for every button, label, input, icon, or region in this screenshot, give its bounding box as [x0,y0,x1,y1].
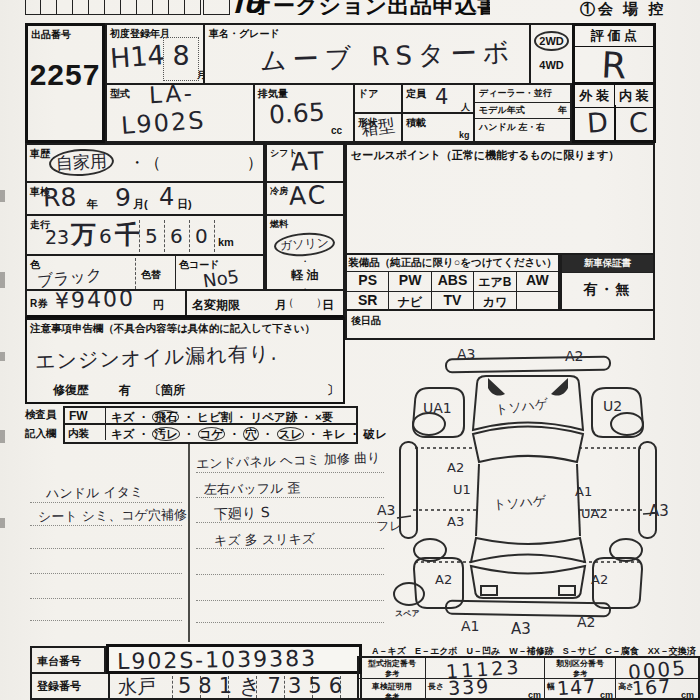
divider [105,425,106,440]
dmg-front-left: A3 [457,346,475,362]
scan-edge-mark [0,190,5,202]
note-line [30,598,182,599]
note-line [196,600,384,601]
equipment-box: 装備品（純正品に限り○をつけてください） PS PW ABS エアB AW SR… [345,255,560,311]
shape-cell: 形状 箱型 [355,114,403,143]
fw-item: キズ [111,411,135,423]
dmg-quarter-l: A2 [435,572,452,587]
history-paren-close: ） [247,153,263,174]
length-value: 339 [447,675,490,699]
spec-table: 型式指定番号 参考 11123 類別区分番号 参考 0005 車検証明用 参考 … [357,656,700,700]
mileage-row: 走行 23 万 6 千 5 6 0 km [25,216,265,256]
height-cell: 高さ 167 cm [616,679,698,700]
mileage-man-unit: 万 [71,218,96,251]
equipment-label: 装備品（純正品に限り○をつけてください） [347,255,558,272]
chassis-value-box: L902S-1039383 [106,644,362,674]
plate-prefix: 水戸 [118,673,157,700]
shaken-day-unit: 日) [177,197,192,212]
chassis-label-cell: 車台番号 [30,646,106,674]
capacity-unit: 人 [461,101,470,114]
divider [139,220,140,252]
int-item-circled: 穴 [243,427,259,441]
sep: ・ [138,411,150,423]
inspector-head1: 検査員 [25,408,57,422]
later-items-label: 後日品 [351,314,653,328]
corner-copy-note: ①会 場 控 [580,0,666,19]
divider [172,676,173,698]
sep: ・ [138,428,150,440]
int-item-circled: コゲ [198,427,226,441]
note-line [30,620,182,621]
caution-label: 注意事項申告欄（不具合内容等は具体的に記入して下さい） [30,322,343,336]
taillight-left [481,586,497,595]
int-item: 破レ [363,428,386,440]
sep: ・ [228,428,240,440]
caution-note: エンジンオイル漏れ有り. [35,340,278,375]
cowl-left [488,378,505,396]
form-title: オークション出品申込書 [250,0,490,15]
model-no-label: 型式指定番号 [359,658,425,669]
spare-tire [394,583,424,605]
doors-cell: ドア [355,85,403,114]
history-row: 車歴 自家用 ・（ ） [25,143,265,183]
divider [164,220,165,252]
dmg-side-r2: UA2 [581,506,608,521]
spare-label: スペア [395,608,420,619]
history-value: 自家用 [48,147,114,177]
fuel-label: 燃料 [270,218,343,231]
load-label: 積載 [406,116,473,130]
note-scratches: キズ 多 スリキズ [214,530,315,550]
int-item-circled: スレ [277,427,305,441]
strip-cell [73,0,89,15]
note-line [30,548,182,549]
interior-row-label: 内装 [68,427,89,441]
mileage-d3: 0 [195,224,208,248]
wheel-front-left [413,413,445,435]
scan-edge-mark [0,352,5,361]
mileage-sen-unit: 千 [115,218,140,251]
taillight-right [559,586,575,595]
cert-label-cell: 車検証明用 参考 [359,679,426,700]
note-line [30,573,182,574]
sales-point-label: セールスポイント（正常に機能するものに限ります） [351,148,653,163]
rear-hatch [471,566,585,598]
shape-value: 箱型 [360,114,397,142]
int-item: キズ [111,428,135,440]
drive-2wd: 2WD [534,31,568,51]
equip-pw: PW [389,272,431,291]
grade-box: 評 価 点 R [572,23,656,85]
cabin-left-edge [476,464,479,536]
warranty-value: 有・無 [562,281,653,299]
displacement-value: 0.65 [268,98,325,130]
interior-items: キズ ・ 汚レ ・ コゲ ・ 穴 ・ スレ ・ キレ ・ 破レ [111,427,387,442]
fuel-cell: 燃料 ガソリン ・ 軽 油 ・ （ ） [265,216,345,291]
cert-label: 車検証明用 [359,681,425,692]
grade-value: R [574,43,654,88]
equip-aw: AW [517,272,558,291]
width-cell: 幅 147 cm [545,679,616,700]
displacement-box: 排気量 0.65 cc [255,85,355,143]
strip-cell [137,0,153,15]
first-registration-month: 8 [164,40,198,71]
repair-location-close: 〕 [327,382,339,399]
dmg-rear3: A2 [577,614,595,630]
shaken-month-unit: 月( [133,197,148,212]
plate-row: 登録番号 水戸 581き7356 [30,674,362,700]
fuel-gasoline: ガソリン [274,231,337,258]
shaken-row: 車検 R8 年 9 月( 4 日) [25,183,265,216]
shaken-day: 4 [159,183,174,211]
strip-cell [41,0,57,15]
sep: ・ [262,428,274,440]
shift-cell: シフト AT [265,143,345,183]
int-item: キレ [322,428,346,440]
model-code-prefix: LA- [148,80,195,108]
lot-number-label: 出品番号 [31,28,102,42]
lot-number-value: 2257 [28,58,102,92]
model-year-label: モデル年式 [479,104,525,117]
cm-unit: cm [600,690,613,700]
equip-empty [517,292,558,311]
equip-abs: ABS [432,272,474,291]
drive-type-box: 2WD 4WD [531,23,572,85]
dmg-side-r1: A1 [575,484,592,499]
ac-cell: 冷房 AC [265,183,345,216]
fw-item: ×要 [315,411,333,423]
strip-cell [89,0,105,15]
scan-edge-mark [0,518,5,528]
car-outline-svg [393,342,663,642]
mileage-sen-digit: 6 [99,224,112,248]
int-item-circled: 汚レ [152,427,179,441]
strip-cell [25,0,41,15]
mileage-d2: 6 [170,224,183,248]
divider [105,408,106,423]
right-sill [639,442,656,538]
dmg-out-left-note: フレ [377,518,402,535]
sep: ・ [307,428,319,440]
notes-divider [188,444,190,642]
fuel-sep: ・ [267,256,343,267]
equip-navi: ナビ [389,292,431,311]
equip-kawa: カワ [474,292,516,311]
strip-cell [105,0,121,15]
car-damage-diagram: A3 A2 UA1 U2 トソハゲ トソハゲ A2 U1 A3 A3 フレ A1… [393,342,663,642]
rticket-value: ¥9400 [55,286,136,314]
ref-note: 参考 [359,692,425,700]
load-unit: kg [459,130,470,140]
color-code-value: No5 [202,266,241,292]
dmg-out-left: A3 [377,502,395,518]
color-change-label: 色替 [141,268,161,282]
model-no-label-cell: 型式指定番号 参考 [359,658,426,678]
handle-side-label: ハンドル 左・右 [475,119,570,134]
dmg-quarter-r: A2 [591,572,608,587]
warranty-label: 新車保証書 [562,255,653,273]
mileage-unit: km [218,236,234,248]
note-underbody: 下廻り S [214,504,270,524]
capacity-value: 4 [435,85,448,109]
fw-label: FW [69,409,88,423]
car-name-value: ムーブ RSターボ [259,35,515,79]
shift-value: AT [291,146,326,176]
later-items-box: 後日品 [345,311,655,340]
note-baffle: 左右バッフル 歪 [204,479,301,499]
dmg-rear2: A3 [511,620,531,638]
divider [214,220,215,252]
chassis-value: L902S-1039383 [117,645,359,674]
fuel-sep: ・ [267,284,343,295]
chassis-label: 車台番号 [37,654,104,669]
model-year-unit: 年 [558,104,567,117]
equip-sr: SR [347,292,389,311]
doors-label: ドア [358,87,401,101]
fuel-diesel: 軽 油 [267,267,343,284]
load-cell: 積載 kg [403,114,475,143]
sales-point-box: セールスポイント（正常に機能するものに限ります） [345,143,655,255]
divider [108,674,110,700]
fw-item: リペア跡 [250,411,297,423]
divider [185,291,187,315]
divider [189,220,190,252]
strip-cell [57,0,73,15]
exterior-label: 外 装 [575,85,615,107]
exterior-value: D [586,106,609,138]
car-name-box: 車名・グレード ムーブ RSターボ [205,23,531,85]
capacity-cell: 定員 4 人 [403,85,475,114]
fw-item-circled: 飛石 [152,410,179,424]
strip-cell [169,0,185,15]
code-box-strip [25,0,201,15]
strip-cell [121,0,137,15]
exterior-interior-box: 外 装 内 装 D C [572,85,656,143]
rticket-unit: 円 [153,298,164,313]
sep: ・ [349,428,361,440]
history-paren-open: ・（ [129,153,161,174]
dealer-handle-box: ディーラー・並行 モデル年式 年 ハンドル 左・右 [475,85,572,143]
rear-window [471,538,585,562]
model-code-value: L902S [120,106,206,140]
dmg-side-l3: A3 [447,514,464,529]
equip-airbag: エアB [474,272,516,291]
fuel-other: （ ） [267,295,343,310]
caution-box: 注意事項申告欄（不具合内容等は具体的に記入して下さい） エンジンオイル漏れ有り.… [25,318,345,404]
fw-item: ヒビ割 [197,411,232,423]
scan-edge-mark [0,272,5,288]
first-registration-box: 初度登録年月 H14 8 月 [105,23,205,85]
plate-value: 581き7356 [178,672,349,700]
dmg-rear1: A1 [461,618,479,634]
class-no-label: 類別区分番号 [545,658,615,669]
sep: ・ [183,411,195,423]
note-line [196,622,384,623]
fw-items: キズ ・ 飛石 ・ ヒビ割 ・ リペア跡 ・ ×要 [111,410,333,425]
cabin-right-edge [577,464,580,536]
month-subcell: 8 [163,37,199,81]
dmg-fender-fl: UA1 [423,400,452,416]
shaken-year: R8 [43,182,77,212]
dmg-side-l1: A2 [447,460,464,475]
width-value: 147 [556,675,597,700]
equip-ps: PS [347,272,389,291]
warranty-box: 新車保証書 有・無 [560,255,655,311]
sep: ・ [236,411,248,423]
inspector-section: 検査員 記入欄 FW キズ ・ 飛石 ・ ヒビ割 ・ リペア跡 ・ ×要 内装 … [25,406,358,444]
note-seat: シート シミ、コゲ穴補修 [38,506,187,527]
mileage-d1: 5 [145,224,158,248]
strip-cell [153,0,169,15]
shaken-year-unit: 年 [87,197,98,212]
dmg-fender-fr: U2 [603,398,622,414]
scan-edge-mark [0,430,5,443]
divider [614,105,616,140]
length-label: 長さ [428,681,444,692]
sep: ・ [300,411,312,423]
cowl-right [551,378,568,396]
strip-cell-wide [203,0,230,15]
ac-value: AC [289,180,328,210]
drive-4wd: 4WD [531,59,572,71]
auction-sheet-scan: JU オークション出品申込書 ①会 場 控 出品番号 2257 初度登録年月 H… [0,0,700,700]
repair-history-value: 有 [119,382,131,399]
note-line [196,574,384,575]
dealer-parallel-label: ディーラー・並行 [475,85,570,103]
shaken-month: 9 [115,183,131,212]
wheel-front-right [611,413,643,435]
sep: ・ [183,428,195,440]
first-registration-year: H14 [109,39,166,74]
strip-cell [185,0,201,15]
height-value: 167 [631,675,672,700]
left-sill [400,442,417,538]
plate-label: 登録番号 [37,679,81,694]
cm-unit: cm [528,690,541,700]
divider [175,256,176,291]
ref-note: 参考 [359,669,425,679]
color-row: 色 ブラック 色替 色コード No5 [25,256,265,291]
dmg-out-right: A3 [649,502,669,520]
interior-value: C [628,107,648,139]
displacement-unit: cc [331,125,342,136]
deadline-label: 名変期限 [192,297,240,314]
equip-tv: TV [432,292,474,311]
inspector-head2: 記入欄 [25,427,57,441]
repair-history-label: 修復歴 [53,382,89,399]
note-handle: ハンドル イタミ [46,483,144,503]
dmg-front-right: A2 [565,348,583,364]
divider [135,258,136,289]
windshield [473,427,583,463]
lot-number-box: 出品番号 2257 [25,23,105,143]
interior-label: 内 装 [615,85,654,107]
model-code-box: 型式 LA- L902S [105,85,255,143]
repair-location-open: 〔箇所 [149,382,185,399]
mileage-man-digits: 23 [45,226,69,248]
dmg-side-l2: U1 [453,482,471,497]
width-label: 幅 [547,681,555,692]
length-cell: 長さ 339 cm [426,679,545,700]
cm-unit: cm [681,690,694,700]
